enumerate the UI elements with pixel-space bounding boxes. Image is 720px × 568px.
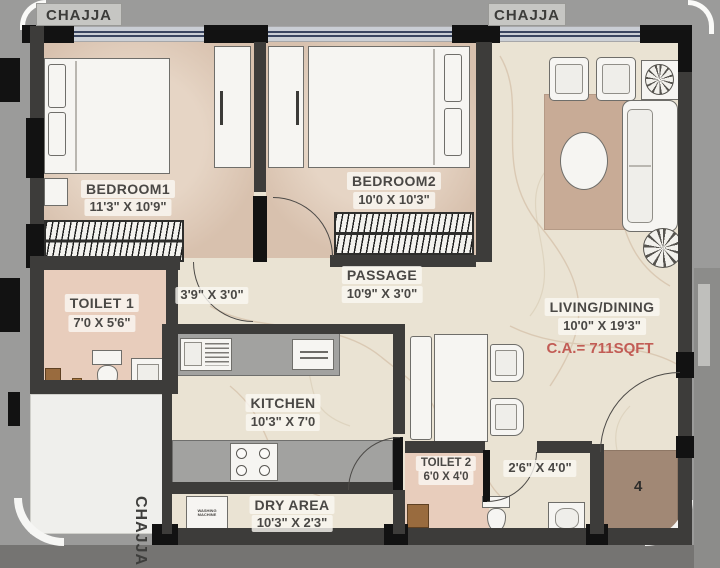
sofa-cushion-divider	[629, 165, 651, 167]
bedroom2-dims: 10'0 X 10'3"	[353, 192, 435, 209]
side-table-spoke-pattern	[645, 64, 674, 95]
sink-drainboard	[205, 343, 229, 366]
living-name: LIVING/DINING	[545, 298, 660, 316]
wall-toilet1-bottom	[30, 380, 178, 394]
closet-handle	[296, 91, 299, 125]
wall-toilet2-top	[537, 441, 592, 453]
wall-pier-block	[204, 25, 268, 43]
sofa	[622, 100, 678, 232]
pillow	[444, 108, 462, 156]
toilet2-name: TOILET 2	[416, 456, 476, 471]
window-block-right	[678, 26, 692, 72]
washing-machine: WASHING MACHINE	[186, 496, 228, 531]
bedroom-door-leaf	[253, 196, 267, 262]
chajja-label-top-left: CHAJJA	[36, 3, 122, 26]
appliance-detail	[300, 351, 328, 353]
exterior-column-stub	[8, 392, 20, 426]
pillow	[48, 64, 66, 108]
kitchen-name: KITCHEN	[245, 394, 320, 412]
living-dims: 10'0" X 19'3"	[558, 318, 646, 335]
outside-right-slab	[698, 284, 710, 366]
window-bedroom2	[268, 27, 452, 41]
dining-chair	[490, 344, 524, 382]
chair-cushion	[495, 350, 517, 376]
chajja-bottom-corner-arc	[14, 498, 64, 546]
window-living	[500, 27, 640, 41]
wall-kitchen-left	[162, 324, 172, 534]
blanket-fold	[75, 61, 77, 171]
foyer-dims: 2'6" X 4'0"	[503, 460, 576, 477]
floor-plan: WASHING MACHINE CHAJJA CHAJJA	[0, 0, 720, 568]
sink-basin	[184, 342, 202, 366]
armchair-cushion	[555, 64, 583, 94]
carpet-area-text: C.A.= 711SQFT	[541, 339, 658, 359]
nightstand	[44, 178, 68, 206]
armchair	[596, 57, 636, 101]
dining-chair	[490, 398, 524, 436]
stove-burner	[236, 448, 247, 459]
exterior-column-stub	[0, 278, 20, 332]
gas-stove	[230, 443, 278, 481]
wall-kitchen-right	[393, 324, 405, 434]
wall-toilet2-top	[405, 441, 485, 453]
bedroom2-wardrobe	[334, 212, 474, 255]
corner-side-table	[641, 60, 679, 100]
wall-bedroom1-bottom	[30, 256, 180, 270]
wall-bedroom2-living	[476, 42, 492, 262]
bedroom2-name: BEDROOM2	[347, 172, 441, 190]
toilet1-name: TOILET 1	[65, 294, 139, 312]
washing-machine-label: WASHING MACHINE	[197, 509, 217, 517]
kitchen-appliance	[292, 339, 334, 370]
passage-name: PASSAGE	[342, 266, 422, 284]
bedroom1-dims: 11'3" X 10'9"	[84, 199, 171, 216]
wc-cistern	[92, 350, 122, 365]
bedroom1-name: BEDROOM1	[81, 180, 175, 198]
stove-burner	[259, 465, 270, 476]
exterior-column-stub	[0, 58, 20, 102]
toilet2-dims: 6'0 X 4'0	[418, 470, 473, 485]
vestibule-dims: 3'9" X 3'0"	[175, 287, 248, 304]
wall-pier-block	[452, 25, 500, 43]
passage-dims: 10'9" X 3'0"	[342, 286, 423, 303]
coffee-table	[560, 132, 608, 190]
dining-bench	[410, 336, 432, 440]
window-block-left	[26, 118, 44, 178]
wall-between-closets	[254, 42, 266, 192]
kitchen-sink	[180, 338, 232, 371]
bedroom1-closet	[214, 46, 251, 168]
kitchen-dims: 10'3" X 7'0	[246, 414, 320, 431]
entrance-unit-number: 4	[634, 478, 642, 495]
armchair	[549, 57, 589, 101]
blanket-fold	[433, 49, 435, 165]
chajja-label-bottom-left: CHAJJA	[127, 496, 149, 568]
armchair-cushion	[602, 64, 630, 94]
wall-kitchen-top	[166, 324, 402, 334]
chair-cushion	[495, 404, 517, 430]
dry-area-name: DRY AREA	[249, 496, 334, 514]
toilet1-dims: 7'0 X 5'6"	[68, 315, 135, 332]
pillow	[444, 54, 462, 102]
floor-decor-round	[643, 228, 683, 268]
stove-burner	[236, 465, 247, 476]
pillow	[48, 112, 66, 156]
stove-burner	[259, 448, 270, 459]
toilet2-cabinet	[407, 504, 429, 528]
wall-foyer-entrance	[590, 444, 604, 534]
closet-handle	[220, 91, 223, 125]
bedroom2-closet	[268, 46, 304, 168]
appliance-detail	[300, 357, 328, 359]
dining-table	[434, 334, 488, 442]
chajja-label-top-right: CHAJJA	[488, 3, 566, 26]
outside-bottom-band	[0, 545, 720, 568]
wall-kitchen-right	[393, 490, 405, 534]
wall-left	[30, 26, 44, 392]
wall-right	[678, 26, 692, 545]
dry-area-dims: 10'3" X 2'3"	[252, 515, 333, 532]
basin-bowl	[555, 508, 579, 529]
window-bedroom1	[74, 27, 204, 41]
wall-bottom	[152, 528, 692, 545]
